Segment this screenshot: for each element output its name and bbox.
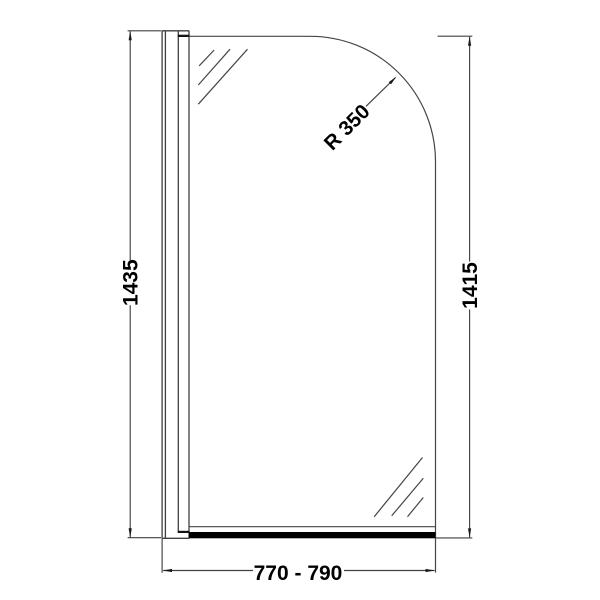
svg-text:770 - 790: 770 - 790 [254,562,343,585]
svg-text:R 350: R 350 [320,100,375,155]
svg-text:1435: 1435 [120,259,143,306]
svg-text:1415: 1415 [459,262,482,309]
